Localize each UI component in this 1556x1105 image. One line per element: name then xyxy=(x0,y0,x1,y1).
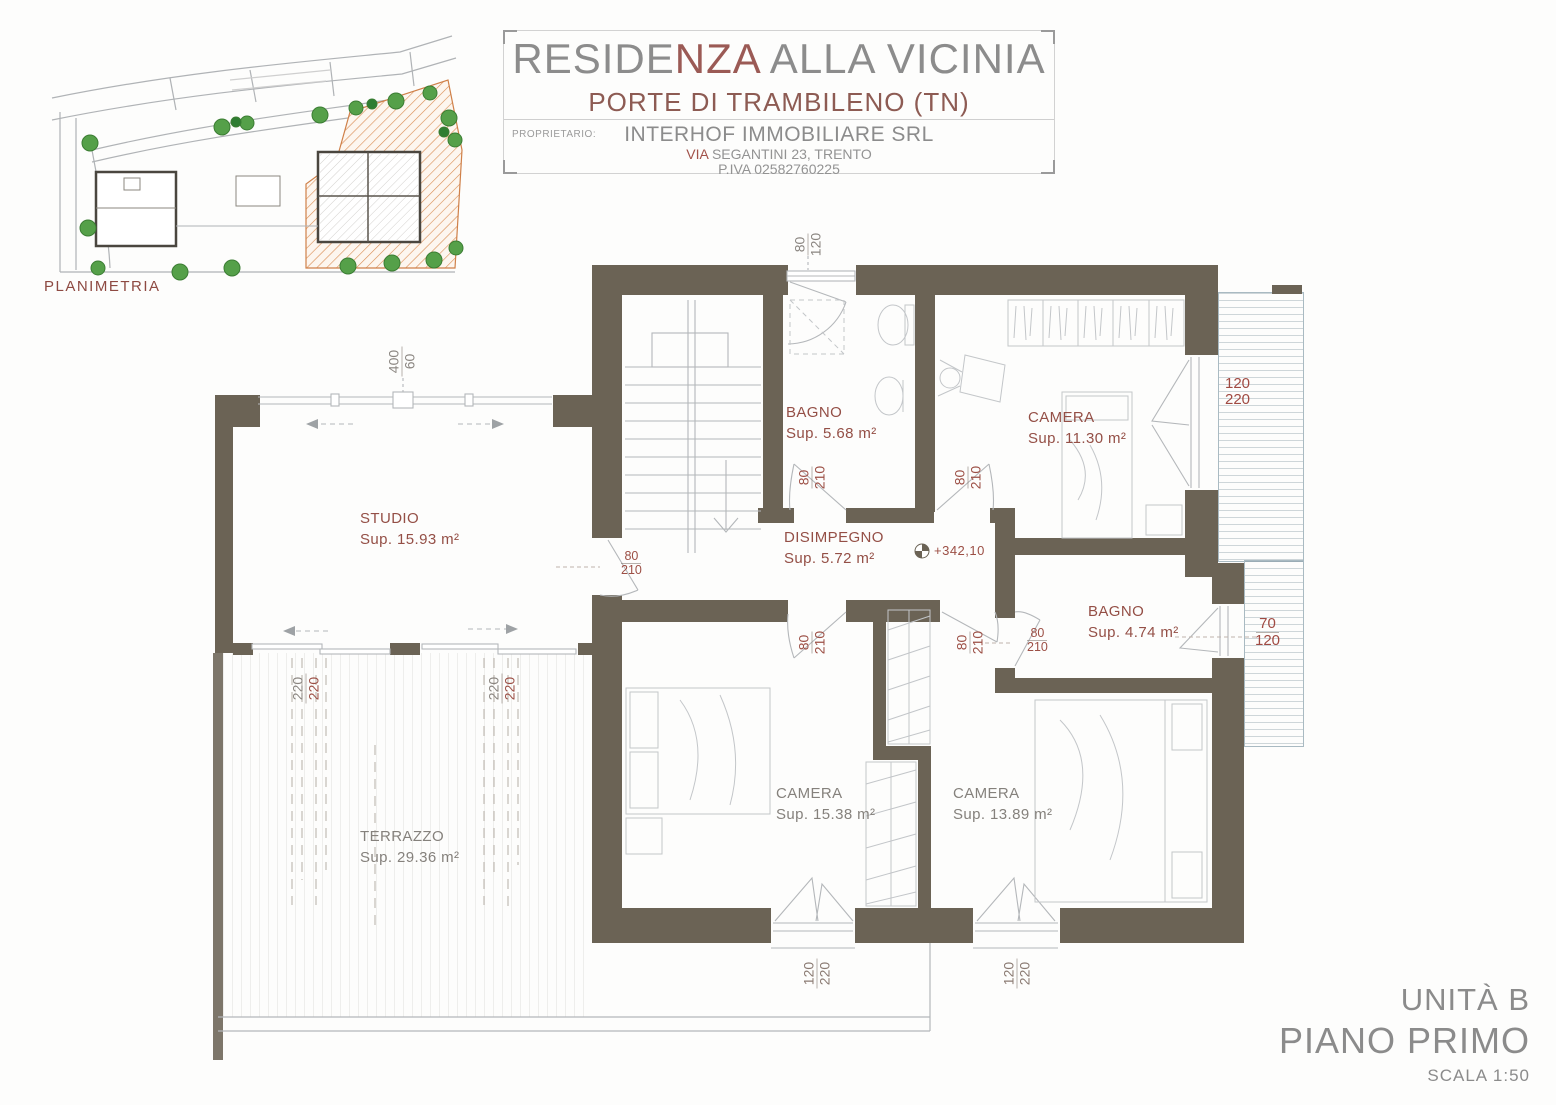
drawing-footer: UNITÀ B PIANO PRIMO SCALA 1:50 xyxy=(1279,982,1530,1086)
bed xyxy=(1035,700,1207,902)
room-label-bagno1: BAGNOSup. 5.68 m² xyxy=(786,402,877,444)
dim-window-camera3: 120220 xyxy=(1002,950,1033,998)
floor-label: PIANO PRIMO xyxy=(1279,1020,1530,1062)
wardrobe xyxy=(1008,300,1184,346)
dim-door: 80210 xyxy=(1024,627,1051,654)
staircase xyxy=(625,300,761,553)
bed xyxy=(626,688,770,814)
dim-door: 80210 xyxy=(955,619,986,667)
dim-slider-left: 220220 xyxy=(291,665,322,713)
room-label-camera2: CAMERASup. 15.38 m² xyxy=(776,783,875,825)
room-label-bagno2: BAGNOSup. 4.74 m² xyxy=(1088,601,1179,643)
nightstand xyxy=(1146,505,1182,535)
floor-plan-sheet: RESIDENZA ALLA VICINIA PORTE DI TRAMBILE… xyxy=(0,0,1556,1105)
dim-door: 80210 xyxy=(953,454,984,502)
dim-window-bagno2: 70120 xyxy=(1252,616,1283,649)
dim-balcony-window: 120220 xyxy=(1222,376,1253,408)
room-label-studio: STUDIOSup. 15.93 m² xyxy=(360,508,459,550)
room-label-camera1: CAMERASup. 11.30 m² xyxy=(1028,407,1126,449)
shower xyxy=(790,300,844,354)
room-label-camera3: CAMERASup. 13.89 m² xyxy=(953,783,1052,825)
plan-linework xyxy=(0,0,1556,1105)
unit-label: UNITÀ B xyxy=(1279,982,1530,1018)
bidet xyxy=(875,377,903,415)
dim-window-top: 80120 xyxy=(793,221,824,269)
dim-door: 80210 xyxy=(797,619,828,667)
toilet xyxy=(878,305,914,345)
elevation-marker xyxy=(915,544,929,558)
dim-window-studio: 40060 xyxy=(387,338,418,386)
desk-chair xyxy=(938,355,1005,402)
nightstand xyxy=(626,818,662,854)
dim-window-camera2: 120220 xyxy=(802,950,833,998)
dim-door: 80210 xyxy=(618,550,645,577)
scale-label: SCALA 1:50 xyxy=(1279,1066,1530,1086)
closet xyxy=(888,610,930,744)
dim-door: 80210 xyxy=(797,454,828,502)
dim-slider-right: 220220 xyxy=(487,665,518,713)
room-label-terrazzo: TERRAZZOSup. 29.36 m² xyxy=(360,826,459,868)
room-label-disimpegno: DISIMPEGNOSup. 5.72 m² xyxy=(784,527,884,569)
elevation-value: +342,10 xyxy=(934,543,985,558)
